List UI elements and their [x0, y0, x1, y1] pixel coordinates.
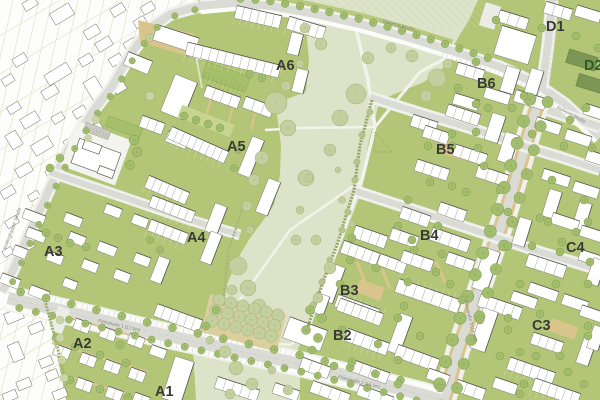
svg-text:C3: C3 [532, 318, 551, 334]
svg-text:B3: B3 [340, 283, 359, 299]
svg-text:D1: D1 [546, 19, 565, 35]
svg-text:B4: B4 [420, 228, 439, 244]
svg-text:D2: D2 [584, 58, 600, 74]
svg-text:B2: B2 [333, 328, 352, 344]
svg-text:A4: A4 [187, 230, 206, 246]
svg-text:A6: A6 [276, 58, 295, 74]
svg-text:C4: C4 [566, 240, 585, 256]
svg-text:A3: A3 [44, 244, 63, 260]
svg-text:A2: A2 [73, 336, 92, 352]
svg-text:B6: B6 [477, 76, 496, 92]
svg-text:B5: B5 [436, 142, 455, 158]
svg-text:A5: A5 [227, 139, 246, 155]
svg-text:A1: A1 [155, 384, 174, 400]
